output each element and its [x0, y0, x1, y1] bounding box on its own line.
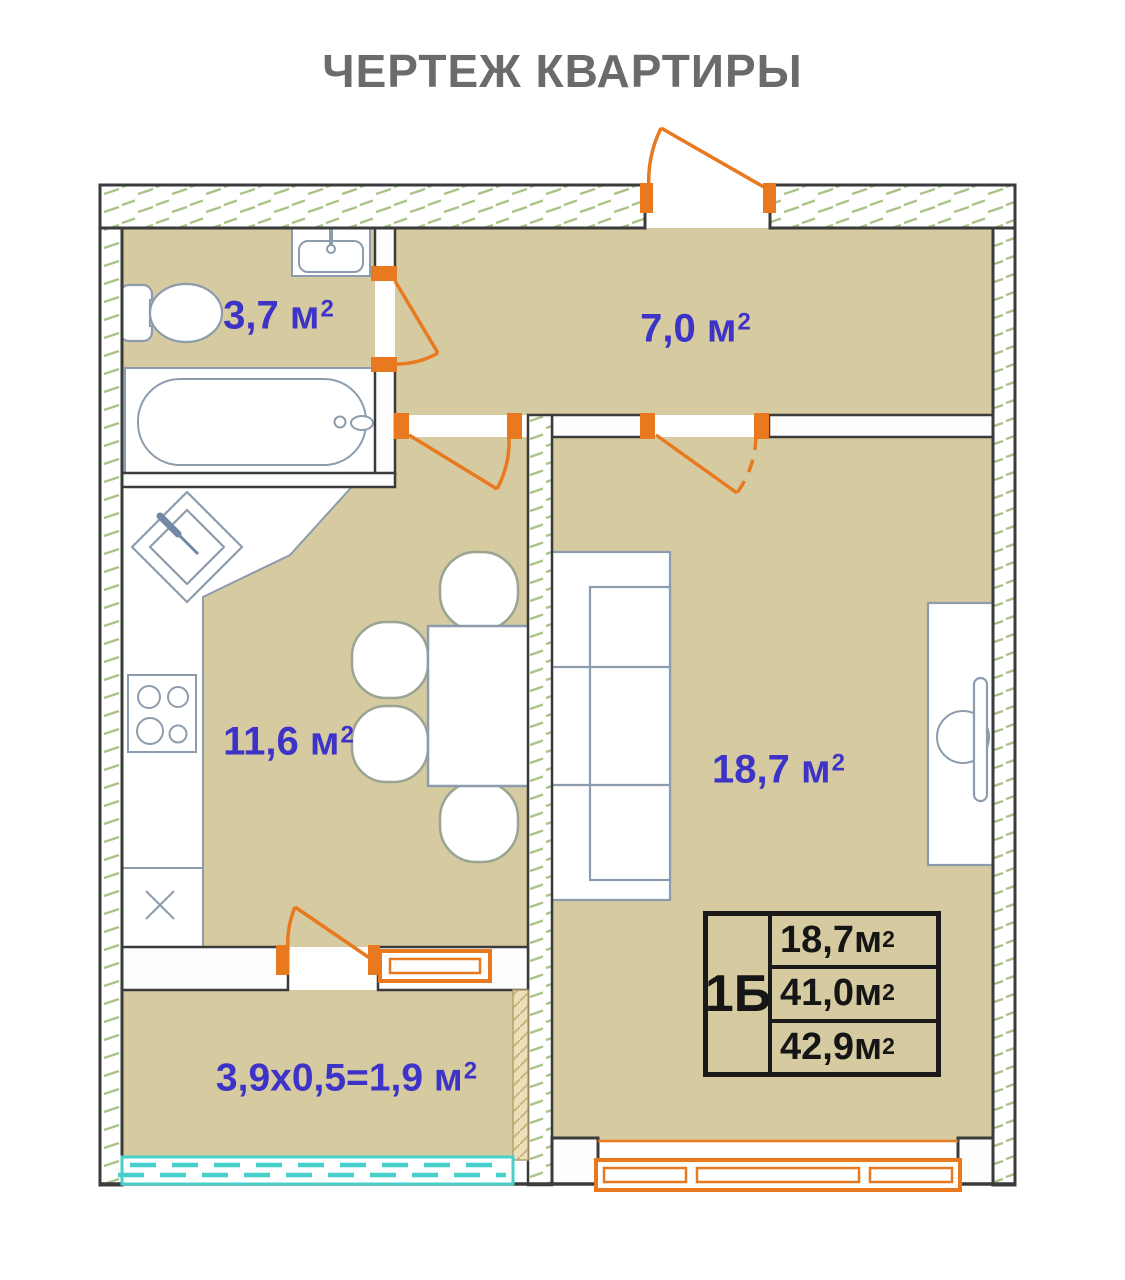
- bathroom-bottom-wall: [122, 473, 395, 487]
- burner: [170, 726, 187, 743]
- apartment-area-row: 41,0м2: [772, 969, 936, 1022]
- kitchen-area-label: 11,6 м2: [223, 719, 353, 764]
- desk-panel: [974, 678, 987, 801]
- entrance-door: [640, 128, 776, 213]
- balcony-window: [380, 951, 490, 981]
- tub-drain: [335, 417, 346, 428]
- bathtub: [125, 368, 380, 476]
- apartment-type-label: 1Б: [708, 916, 772, 1072]
- living-room-area-label: 18,7 м2: [712, 747, 844, 792]
- chair: [352, 622, 428, 698]
- tub-faucet: [351, 416, 373, 430]
- burner: [137, 718, 163, 744]
- living-area-row: 18,7м2: [772, 916, 936, 969]
- central-wall: [528, 415, 552, 1185]
- outer-wall-right: [993, 228, 1015, 1185]
- bathroom-area-label: 3,7 м2: [223, 293, 333, 338]
- outer-wall-top-right: [770, 185, 1015, 228]
- toilet-bowl: [150, 284, 222, 342]
- hallway-area-label: 7,0 м2: [640, 306, 750, 351]
- balcony-area-label: 3,9x0,5=1,9 м2: [216, 1056, 476, 1101]
- desk: [928, 603, 995, 865]
- page-title: ЧЕРТЕЖ КВАРТИРЫ: [0, 44, 1125, 98]
- wash-basin: [292, 228, 370, 276]
- hall-wall-segment: [769, 415, 995, 437]
- chair: [440, 782, 518, 862]
- burner: [138, 686, 160, 708]
- dining-table: [428, 626, 531, 786]
- toilet: [120, 284, 222, 342]
- chair: [440, 552, 518, 630]
- balcony-railing: [118, 1157, 513, 1184]
- apartment-areas: 18,7м2 41,0м2 42,9м2: [772, 916, 936, 1072]
- floor-plan-svg: [0, 0, 1125, 1280]
- chair: [352, 706, 428, 782]
- total-area-row: 42,9м2: [772, 1023, 936, 1072]
- living-room-window: [596, 1141, 960, 1190]
- outer-wall-left: [100, 228, 122, 1185]
- outer-wall-top-left: [100, 185, 645, 228]
- window-pier: [552, 1138, 598, 1184]
- stove: [128, 675, 196, 752]
- apartment-drawing-page: ЧЕРТЕЖ КВАРТИРЫ 3,7 м2 7,0 м2 11,6 м2 18…: [0, 0, 1125, 1280]
- sofa: [552, 552, 670, 900]
- burner: [168, 687, 188, 707]
- balcony-wall-left: [122, 947, 288, 990]
- bathroom-wall-lower: [375, 368, 395, 475]
- apartment-info-table: 1Б 18,7м2 41,0м2 42,9м2: [703, 911, 941, 1077]
- toilet-tank: [120, 285, 152, 341]
- hall-wall-segment: [552, 415, 643, 437]
- balcony-divider: [513, 990, 528, 1160]
